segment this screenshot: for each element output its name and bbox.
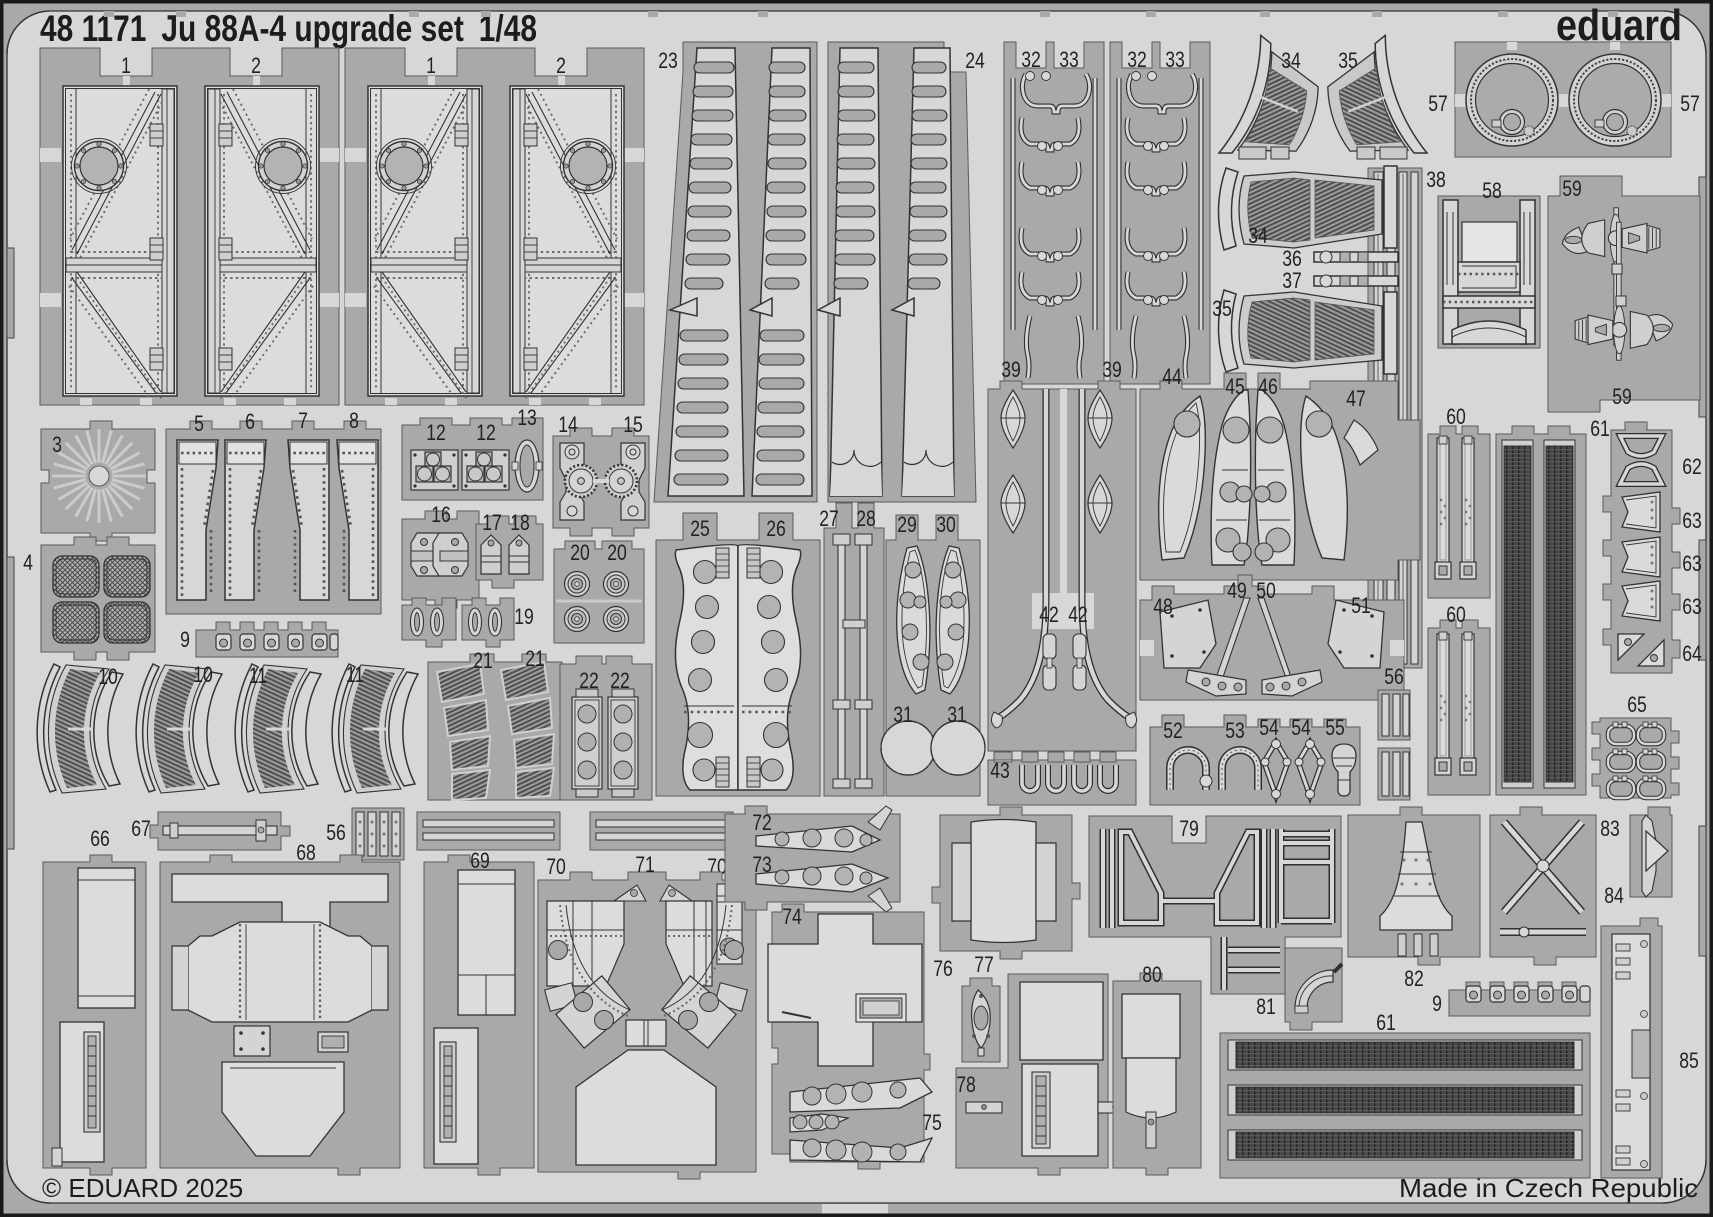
svg-text:20: 20	[607, 541, 627, 565]
svg-text:31: 31	[947, 703, 967, 727]
svg-text:63: 63	[1682, 595, 1702, 619]
svg-text:30: 30	[936, 513, 956, 537]
svg-text:8: 8	[349, 409, 359, 433]
svg-text:1: 1	[426, 54, 436, 78]
svg-text:9: 9	[1432, 992, 1442, 1016]
svg-text:15: 15	[623, 413, 643, 437]
svg-text:79: 79	[1179, 817, 1199, 841]
svg-text:49: 49	[1227, 579, 1247, 603]
svg-text:3: 3	[52, 433, 62, 457]
svg-text:36: 36	[1282, 247, 1302, 271]
svg-text:57: 57	[1428, 92, 1448, 116]
svg-text:13: 13	[517, 406, 537, 430]
svg-text:19: 19	[514, 605, 534, 629]
svg-text:33: 33	[1059, 48, 1079, 72]
svg-text:76: 76	[933, 957, 953, 981]
svg-text:82: 82	[1404, 967, 1424, 991]
svg-text:35: 35	[1338, 49, 1358, 73]
svg-text:71: 71	[635, 853, 655, 877]
svg-text:51: 51	[1351, 594, 1371, 618]
svg-text:54: 54	[1291, 716, 1311, 740]
svg-text:72: 72	[752, 811, 772, 835]
svg-text:21: 21	[525, 647, 545, 671]
svg-text:21: 21	[473, 649, 493, 673]
svg-text:25: 25	[690, 517, 710, 541]
svg-text:55: 55	[1325, 716, 1345, 740]
svg-text:39: 39	[1102, 358, 1122, 382]
svg-text:63: 63	[1682, 509, 1702, 533]
svg-text:57: 57	[1680, 92, 1700, 116]
svg-text:63: 63	[1682, 552, 1702, 576]
svg-text:81: 81	[1256, 995, 1276, 1019]
svg-text:16: 16	[431, 503, 451, 527]
svg-text:48: 48	[1153, 595, 1173, 619]
svg-text:2: 2	[251, 54, 261, 78]
svg-text:77: 77	[974, 953, 994, 977]
svg-text:27: 27	[819, 507, 839, 531]
svg-text:28: 28	[856, 507, 876, 531]
svg-text:43: 43	[990, 759, 1010, 783]
svg-text:85: 85	[1679, 1049, 1699, 1073]
svg-text:10: 10	[193, 663, 213, 687]
svg-text:23: 23	[658, 49, 678, 73]
svg-text:47: 47	[1346, 387, 1366, 411]
svg-text:42: 42	[1068, 603, 1088, 627]
svg-text:22: 22	[610, 669, 630, 693]
svg-text:52: 52	[1163, 719, 1183, 743]
svg-text:14: 14	[558, 413, 578, 437]
svg-text:17: 17	[482, 511, 502, 535]
svg-text:56: 56	[326, 821, 346, 845]
svg-text:35: 35	[1212, 297, 1232, 321]
svg-text:53: 53	[1225, 719, 1245, 743]
svg-text:67: 67	[131, 817, 151, 841]
svg-text:1: 1	[121, 54, 131, 78]
svg-text:34: 34	[1248, 224, 1268, 248]
svg-text:26: 26	[766, 517, 786, 541]
svg-text:32: 32	[1127, 48, 1147, 72]
svg-text:48 1171 Ju 88A-4 upgrade set 1: 48 1171 Ju 88A-4 upgrade set 1/48	[40, 8, 537, 49]
svg-text:11: 11	[249, 664, 267, 688]
svg-text:38: 38	[1426, 168, 1446, 192]
svg-text:61: 61	[1590, 417, 1610, 441]
svg-text:61: 61	[1376, 1011, 1396, 1035]
svg-text:84: 84	[1604, 884, 1624, 908]
svg-text:56: 56	[1384, 665, 1404, 689]
svg-text:7: 7	[298, 409, 308, 433]
svg-text:42: 42	[1039, 603, 1059, 627]
svg-text:5: 5	[194, 412, 204, 436]
svg-text:© EDUARD 2025: © EDUARD 2025	[42, 1173, 243, 1203]
svg-text:69: 69	[470, 849, 490, 873]
svg-text:31: 31	[893, 703, 913, 727]
svg-text:64: 64	[1682, 642, 1702, 666]
svg-text:44: 44	[1162, 365, 1182, 389]
svg-text:6: 6	[245, 410, 255, 434]
svg-text:12: 12	[476, 421, 496, 445]
svg-text:20: 20	[570, 541, 590, 565]
svg-text:50: 50	[1256, 579, 1276, 603]
svg-text:12: 12	[426, 421, 446, 445]
svg-text:75: 75	[922, 1111, 942, 1135]
svg-text:70: 70	[546, 855, 566, 879]
svg-text:60: 60	[1446, 405, 1466, 429]
svg-text:4: 4	[23, 551, 33, 575]
svg-text:73: 73	[752, 853, 772, 877]
svg-text:37: 37	[1282, 269, 1302, 293]
svg-text:80: 80	[1142, 963, 1162, 987]
svg-text:2: 2	[556, 54, 566, 78]
svg-text:24: 24	[965, 49, 985, 73]
svg-text:58: 58	[1482, 179, 1502, 203]
svg-text:9: 9	[180, 628, 190, 652]
svg-text:11: 11	[346, 663, 364, 687]
svg-text:66: 66	[90, 827, 110, 851]
svg-text:65: 65	[1627, 693, 1647, 717]
svg-text:10: 10	[98, 665, 118, 689]
svg-text:68: 68	[296, 841, 316, 865]
svg-text:62: 62	[1682, 455, 1702, 479]
svg-text:45: 45	[1225, 375, 1245, 399]
svg-text:29: 29	[897, 513, 917, 537]
svg-text:39: 39	[1001, 358, 1021, 382]
svg-text:54: 54	[1259, 716, 1279, 740]
svg-text:83: 83	[1600, 817, 1620, 841]
svg-text:60: 60	[1446, 603, 1466, 627]
svg-text:18: 18	[510, 511, 530, 535]
svg-text:32: 32	[1021, 48, 1041, 72]
svg-text:22: 22	[579, 669, 599, 693]
svg-text:33: 33	[1165, 48, 1185, 72]
svg-text:59: 59	[1612, 385, 1632, 409]
svg-text:34: 34	[1281, 49, 1301, 73]
svg-text:74: 74	[782, 905, 802, 929]
svg-text:46: 46	[1258, 375, 1278, 399]
svg-text:59: 59	[1562, 177, 1582, 201]
svg-text:78: 78	[956, 1073, 976, 1097]
